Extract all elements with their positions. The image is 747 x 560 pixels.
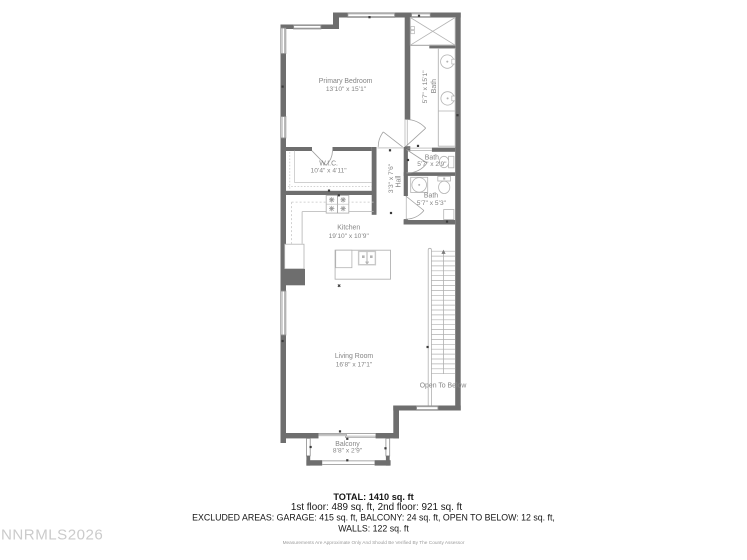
svg-text:WALLS: 122 sq. ft: WALLS: 122 sq. ft: [338, 524, 409, 534]
svg-text:Bath: Bath: [424, 193, 438, 200]
svg-text:Measurements Are Approximate O: Measurements Are Approximate Only And Sh…: [283, 540, 465, 546]
svg-text:NNRMLS2026: NNRMLS2026: [1, 527, 103, 544]
svg-text:Kitchen: Kitchen: [337, 225, 360, 232]
svg-text:EXCLUDED AREAS: GARAGE: 415 sq: EXCLUDED AREAS: GARAGE: 415 sq. ft, BALC…: [192, 513, 555, 523]
svg-text:10’4" x 4’11": 10’4" x 4’11": [311, 168, 348, 175]
svg-text:5’7" x 2’9": 5’7" x 2’9": [417, 161, 447, 168]
svg-text:W.I.C.: W.I.C.: [319, 160, 338, 167]
svg-text:8’8" x 2’9": 8’8" x 2’9": [333, 448, 363, 455]
svg-text:Hall: Hall: [395, 175, 402, 187]
svg-text:Living Room: Living Room: [335, 353, 374, 360]
svg-text:Primary Bedroom: Primary Bedroom: [319, 78, 373, 85]
svg-text:5’7" x 15’1": 5’7" x 15’1": [422, 70, 429, 104]
svg-text:5’7" x 5’3": 5’7" x 5’3": [417, 200, 447, 207]
svg-text:13’10" x 15’1": 13’10" x 15’1": [326, 86, 367, 93]
svg-text:TOTAL: 1410 sq. ft: TOTAL: 1410 sq. ft: [333, 492, 413, 502]
svg-text:1st floor: 489 sq. ft, 2nd flo: 1st floor: 489 sq. ft, 2nd floor: 921 sq…: [291, 502, 463, 513]
svg-text:Bath: Bath: [431, 79, 438, 93]
svg-text:19’10" x 10’9": 19’10" x 10’9": [329, 233, 370, 240]
svg-text:16’8" x 17’1": 16’8" x 17’1": [336, 361, 373, 368]
svg-text:3’3" x 7’6": 3’3" x 7’6": [388, 163, 395, 193]
svg-text:Open To Below: Open To Below: [420, 382, 467, 389]
